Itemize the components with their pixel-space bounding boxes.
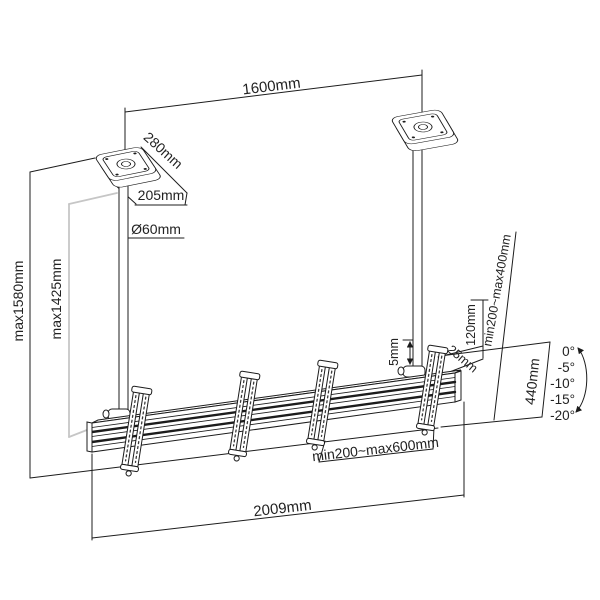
- tilt-angle-scale: 0° -5° -10° -15° -20°: [550, 344, 575, 423]
- technical-diagram-page: 1600mm 280mm 205mm Ø60mm max1580mm max14…: [0, 0, 600, 600]
- label-vesa-horizontal: min200~max600mm: [311, 434, 439, 464]
- label-fine-adjust: 5mm: [387, 338, 401, 366]
- pole-left: [103, 178, 130, 420]
- label-hook-gap: 25mm: [445, 342, 481, 375]
- label-pole-diameter: Ø60mm: [131, 221, 181, 237]
- label-max-drop-pole: max1425mm: [48, 259, 64, 340]
- label-rail-offset: 120mm: [464, 304, 478, 346]
- label-plate-front: 205mm: [138, 187, 185, 203]
- dim-max-drop-pole: [69, 193, 117, 437]
- tilt-angle-4: -20°: [550, 408, 575, 423]
- ceiling-plate-left: [94, 146, 163, 188]
- tilt-angle-3: -15°: [550, 392, 575, 407]
- tilt-angle-0: 0°: [562, 344, 575, 359]
- tilt-arc-arrow: [576, 348, 587, 412]
- pole-right: [398, 140, 425, 377]
- label-rail-length: 2009mm: [253, 497, 313, 521]
- label-bracket-span: 440mm: [522, 357, 543, 405]
- tilt-angle-1: -5°: [558, 360, 575, 375]
- ceiling-plate-right: [390, 109, 460, 152]
- ceiling-mount-drawing: 1600mm 280mm 205mm Ø60mm max1580mm max14…: [0, 0, 600, 600]
- tilt-angle-2: -10°: [550, 376, 575, 391]
- label-max-drop-overall: max1580mm: [10, 261, 26, 342]
- label-span: 1600mm: [241, 75, 301, 99]
